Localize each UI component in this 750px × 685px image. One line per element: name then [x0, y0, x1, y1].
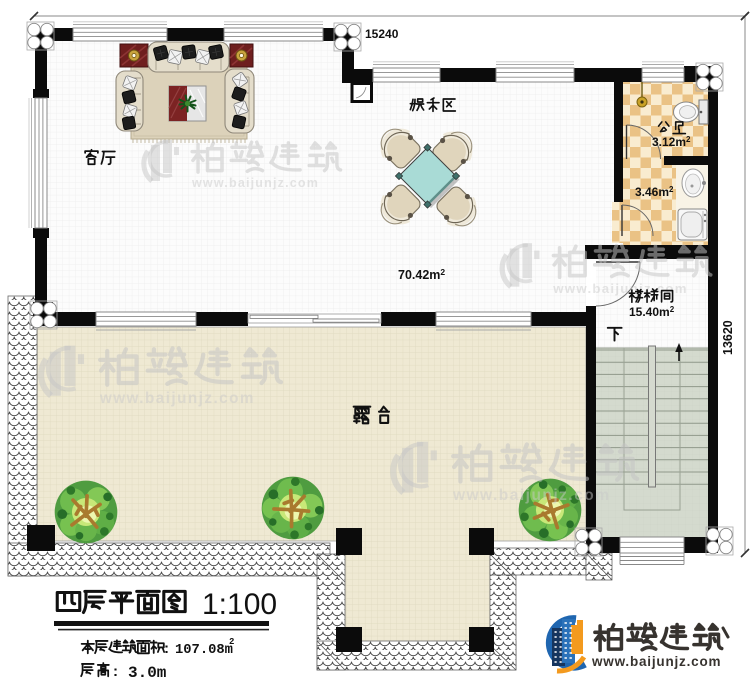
svg-text:3.12m2: 3.12m2 — [652, 135, 691, 149]
svg-text:3.0m: 3.0m — [128, 664, 167, 682]
svg-text::: : — [113, 663, 118, 680]
svg-text:www.baijunjz.com: www.baijunjz.com — [591, 654, 721, 669]
svg-text:107.08m: 107.08m — [175, 643, 233, 658]
svg-text:3.46m2: 3.46m2 — [635, 185, 674, 199]
svg-text::: : — [164, 640, 169, 657]
svg-text:2: 2 — [229, 637, 234, 647]
svg-text:1:100: 1:100 — [202, 588, 277, 621]
svg-text:15.40m2: 15.40m2 — [629, 305, 675, 319]
svg-text:70.42m2: 70.42m2 — [398, 267, 445, 282]
svg-text:15240: 15240 — [365, 27, 399, 41]
svg-text:13620: 13620 — [721, 320, 735, 355]
